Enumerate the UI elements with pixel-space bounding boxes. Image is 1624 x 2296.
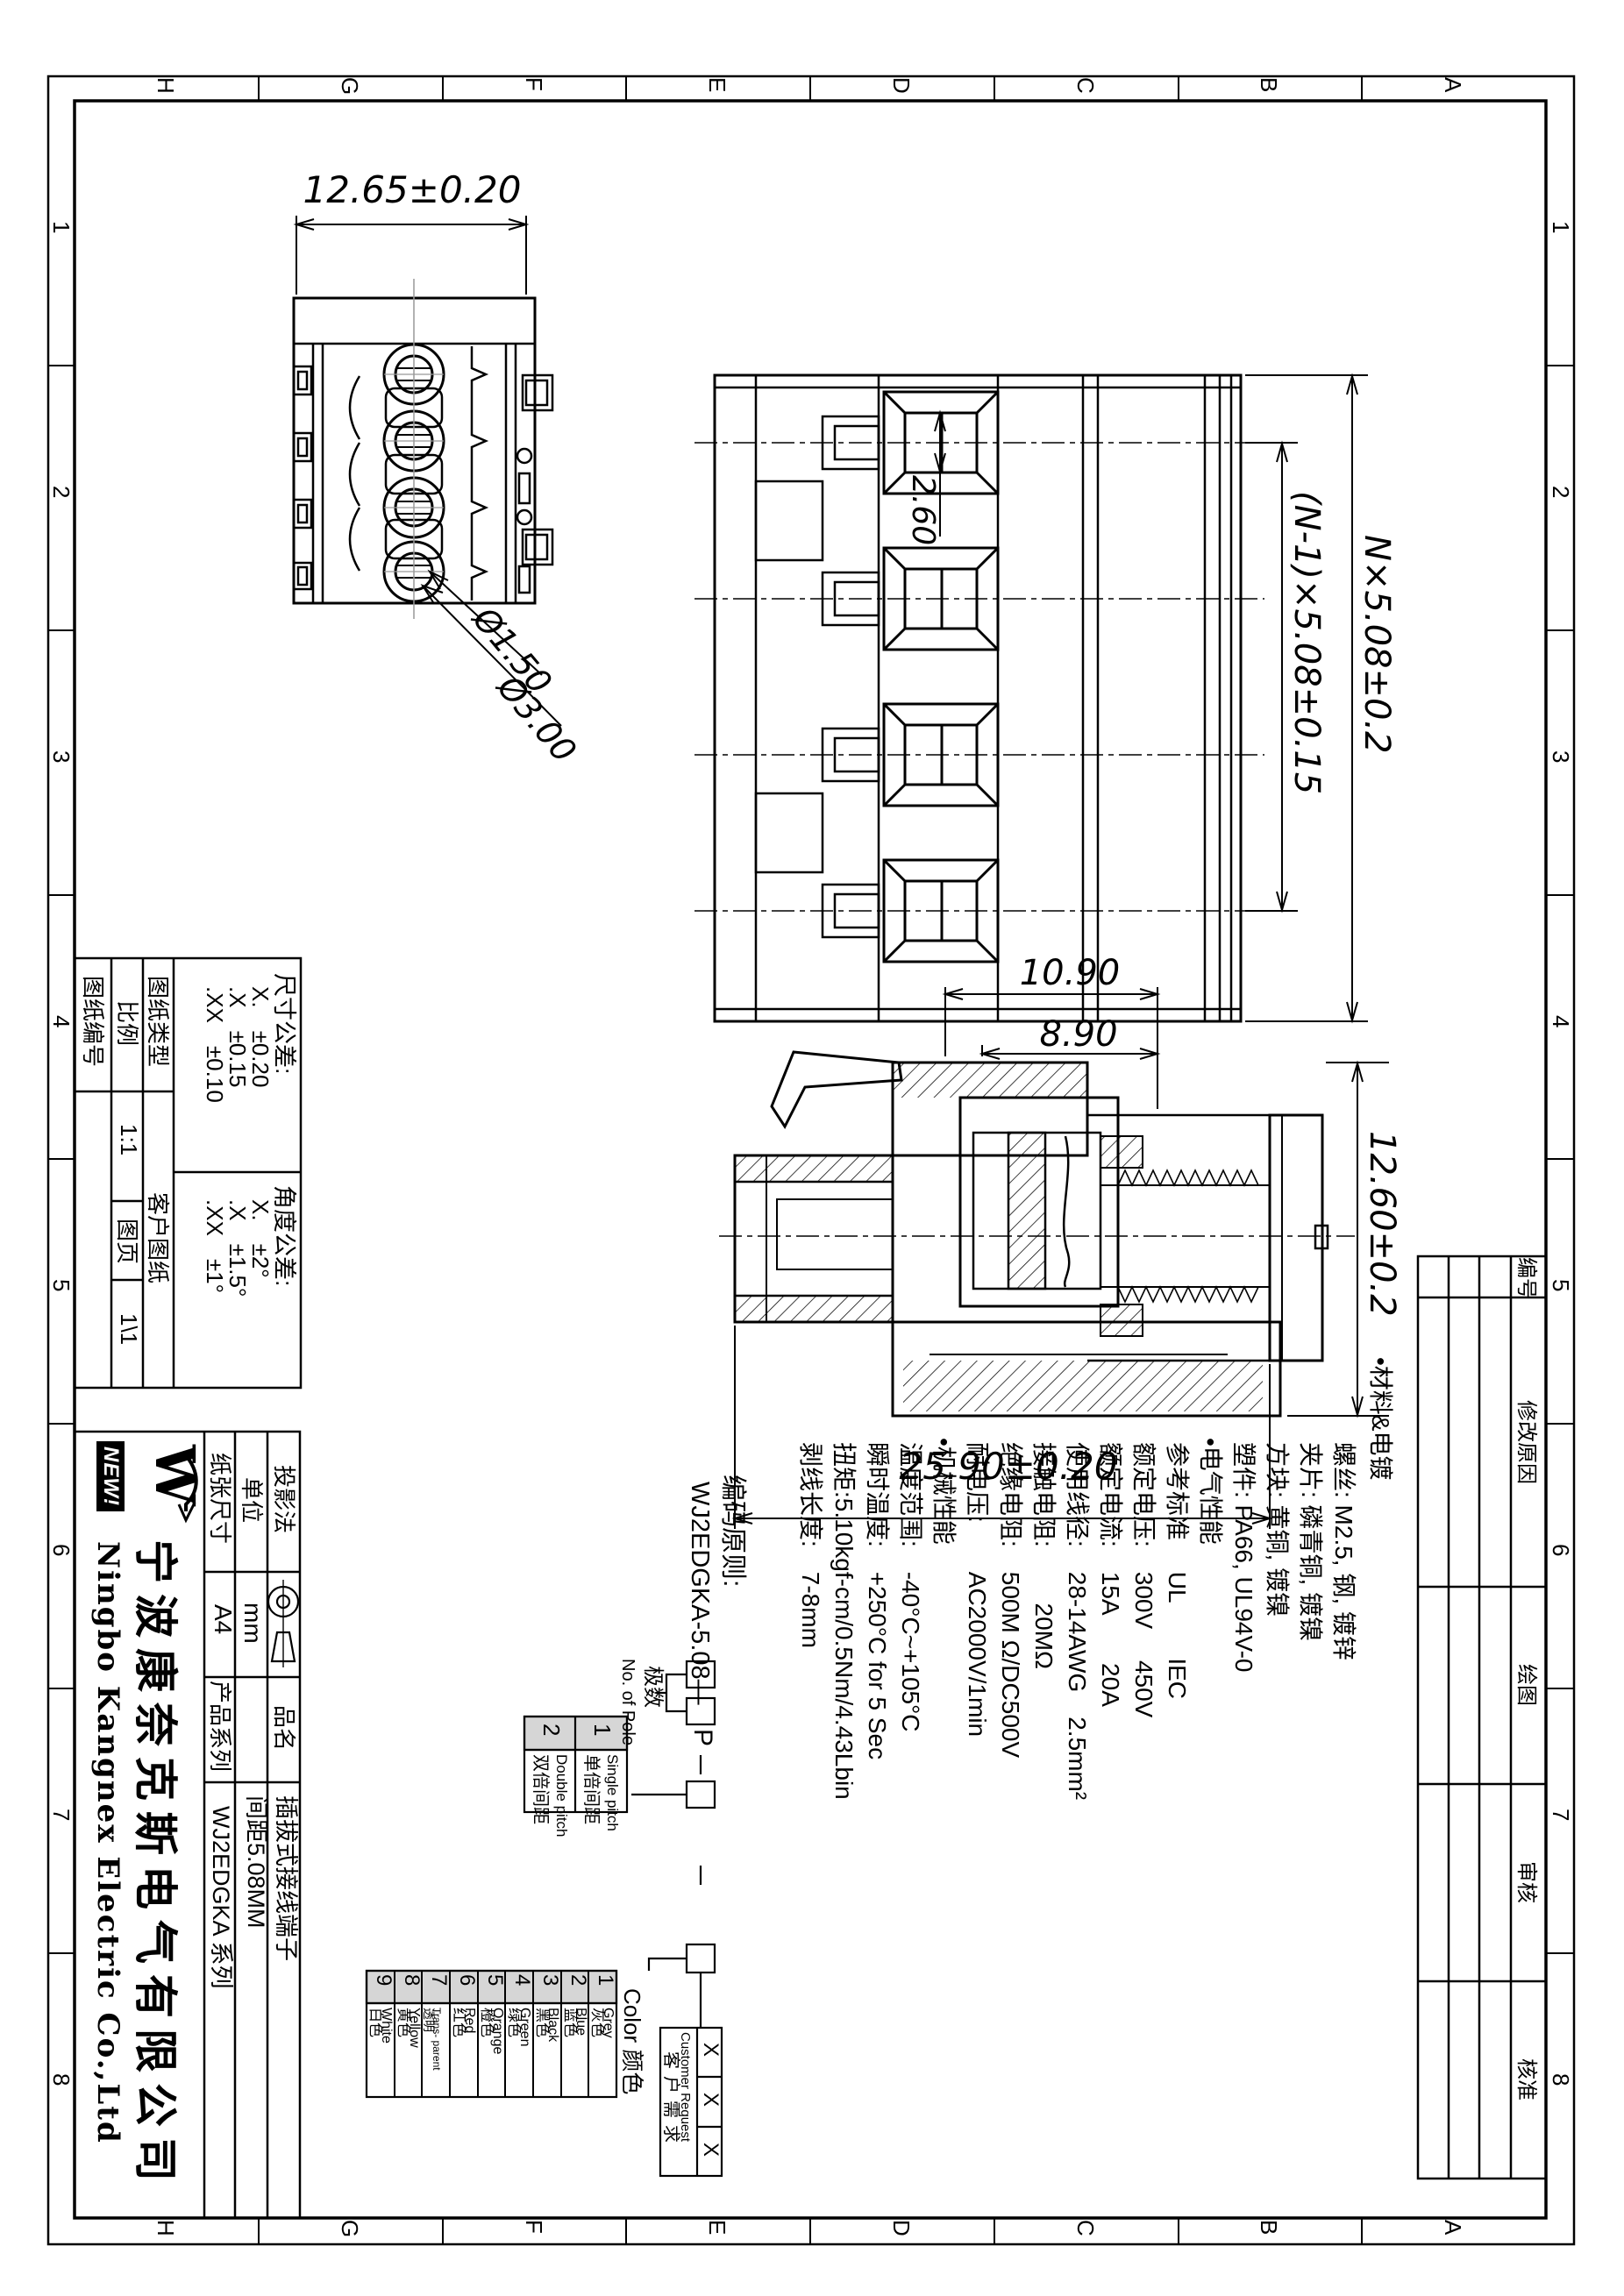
grid-number: 2 — [50, 486, 73, 498]
grid-number: 1 — [1549, 221, 1572, 233]
dim-tolerance-header: 尺寸公差: — [272, 973, 296, 1075]
grid-number: 1 — [50, 221, 73, 233]
grid-number: 4 — [1549, 1015, 1572, 1027]
grid-letter: C — [1074, 2220, 1097, 2236]
dim-10-90: 10.90 — [973, 956, 1166, 991]
scale-value: 1:1 — [118, 1124, 140, 1155]
grid-number: 6 — [50, 1544, 73, 1556]
grid-letter: H — [154, 77, 177, 94]
angle-tolerance-row: .XX ±1° — [203, 1199, 226, 1293]
color-num: 5 — [484, 1974, 505, 1986]
grid-letter: E — [706, 77, 729, 92]
unit-label: 单位 — [240, 1477, 263, 1523]
series-value: WJ2EDGKA 系列 — [209, 1806, 232, 1989]
revision-header-checked: 审核 — [1515, 1861, 1536, 1903]
grid-letter: B — [1257, 77, 1280, 92]
product-name-line2: 间距5.08MM — [244, 1795, 267, 1929]
grid-letter: D — [890, 2220, 913, 2236]
spec-line-insulation-r: 绝缘电阻: 500M Ω/DC500V — [998, 1442, 1022, 1758]
color-table-header: Color 颜色 — [621, 1988, 644, 2094]
ordering-code: WJ2EDGKA-5.08— — [687, 1482, 712, 1705]
color-name-cn: 黄色 — [396, 2008, 411, 2037]
spec-line-peak-temp: 瞬时温度: +250°C for 5 Sec — [865, 1442, 889, 1759]
projection-symbol-icon — [268, 1580, 298, 1667]
product-name-line1: 插拔式接线端子 — [274, 1795, 297, 1961]
grid-number: 8 — [50, 2073, 73, 2086]
spec-line-screw: 螺丝: M2.5, 钢, 镀锌 — [1331, 1442, 1356, 1660]
grid-number: 5 — [50, 1279, 73, 1291]
grid-number: 2 — [1549, 486, 1572, 498]
grid-letter: D — [890, 77, 913, 94]
dim-window-2-60: 2.60 — [907, 475, 938, 545]
pitch-option-en: Single pitch — [605, 1754, 620, 1831]
color-name-cn: 白色 — [368, 2008, 383, 2037]
drawing-no-label: 图纸编号 — [82, 976, 104, 1067]
color-name-cn: 蓝色 — [563, 2008, 578, 2037]
spec-line-plastic: 塑件: PA66, UL94V-0 — [1231, 1442, 1256, 1673]
color-num: 6 — [456, 1974, 477, 1986]
product-name-label: 品名 — [273, 1705, 296, 1751]
sheet-value: 1\1 — [118, 1313, 140, 1345]
spec-line-strip-length: 剥线长度: 7-8mm — [798, 1442, 823, 1648]
ordering-title: 编码原则: — [719, 1475, 745, 1587]
pitch-option-num: 1 — [591, 1724, 614, 1736]
customer-x: X — [700, 2143, 721, 2157]
spec-line-voltage: 额定电压: 300V 450V — [1131, 1442, 1156, 1717]
grid-number: 3 — [50, 750, 73, 763]
spec-line-contact-r: 接触电阻: 20MΩ — [1031, 1442, 1056, 1669]
color-num: 9 — [373, 1974, 394, 1986]
dim-12-60: 12.60±0.2 — [1364, 1131, 1400, 1317]
color-num: 2 — [567, 1974, 588, 1986]
engineering-drawing-sheet: H G F E D C B A H G F E D C B A 1 2 3 4 … — [0, 0, 1624, 2296]
angle-tolerance-header: 角度公差: — [272, 1185, 296, 1287]
spec-line-temp-range: 温度范围: -40°C~+105°C — [898, 1442, 922, 1732]
type-value: 客户图纸 — [146, 1192, 169, 1283]
angle-tolerance-row: X. ±2° — [249, 1199, 272, 1278]
pole-count-label-en: No. of Pole — [619, 1659, 637, 1745]
color-num: 1 — [595, 1974, 616, 1986]
dim-tolerance-row: .X ±0.15 — [226, 986, 249, 1087]
unit-value: mm — [240, 1603, 265, 1644]
dim-pitch-n1: (N-1)×5.08±0.15 — [1289, 491, 1324, 794]
color-name-cn: 透明 — [423, 2008, 435, 2032]
grid-letter: B — [1257, 2220, 1280, 2235]
logo-badge: NEW! — [96, 1441, 125, 1511]
grid-letter: G — [338, 77, 361, 95]
spec-line-electrical-header: •电气性能 — [1198, 1438, 1222, 1545]
spec-line-material-header: •材料&电镀 — [1368, 1357, 1393, 1480]
grid-number: 7 — [1549, 1809, 1572, 1821]
grid-letter: H — [154, 2220, 177, 2236]
dim-8-90: 8.90 — [991, 1017, 1166, 1052]
grid-number: 3 — [1549, 750, 1572, 763]
scale-label: 比例 — [116, 1000, 139, 1046]
customer-x: X — [700, 2043, 721, 2057]
company-logo: W — [147, 1445, 202, 1506]
grid-number: 6 — [1549, 1544, 1572, 1556]
ordering-code-lines — [631, 1661, 715, 2028]
dim-tolerance-row: .XX ±0.10 — [203, 986, 226, 1103]
dim-width-12-65: 12.65±0.20 — [298, 172, 526, 209]
color-name-cn: 灰色 — [590, 2008, 605, 2037]
pitch-option-num: 2 — [540, 1724, 563, 1736]
grid-number: 4 — [50, 1015, 73, 1027]
grid-letter: F — [523, 2220, 545, 2234]
pole-count-label-cn: 极数 — [642, 1666, 663, 1708]
pitch-option-cn: 双倍间距 — [531, 1754, 549, 1824]
type-label: 图纸类型 — [146, 976, 169, 1067]
projection-label: 投影法 — [273, 1465, 296, 1533]
color-name-cn: 绿色 — [507, 2008, 522, 2037]
grid-number: 8 — [1549, 2073, 1572, 2086]
color-num: 8 — [401, 1974, 422, 1986]
grid-letter: C — [1074, 77, 1097, 94]
spec-line-block: 方块: 黄铜, 镀镍 — [1264, 1442, 1289, 1617]
customer-request-en: Customer Request — [679, 2032, 692, 2142]
grid-letter: A — [1442, 77, 1464, 92]
paper-size-label: 纸张尺寸 — [209, 1453, 231, 1544]
spec-line-clip: 夹片: 磷青铜, 镀镍 — [1298, 1442, 1322, 1641]
color-name-cn: 红色 — [452, 2008, 467, 2037]
spec-line-wire: 使用线径: 28-14AWG 2.5mm² — [1065, 1442, 1089, 1800]
customer-request-cn: 客户需求 — [662, 2051, 680, 2150]
angle-tolerance-row: .X ±1.5° — [226, 1199, 249, 1297]
spec-line-torque: 扭矩:5.10kgf-cm/0.5Nm/4.43Lbin — [831, 1442, 856, 1800]
sheet-label: 图页 — [116, 1219, 139, 1264]
grid-number: 7 — [50, 1809, 73, 1821]
color-num: 4 — [511, 1974, 532, 1986]
revision-header-drawn: 绘图 — [1515, 1664, 1536, 1706]
series-label: 产品系列 — [209, 1681, 231, 1772]
paper-size-value: A4 — [210, 1604, 235, 1634]
spec-line-standard: 参考标准 UL IEC — [1165, 1442, 1189, 1699]
revision-header-approved: 核准 — [1515, 2058, 1536, 2101]
grid-number: 5 — [1549, 1279, 1572, 1291]
pitch-option-cn: 单倍间距 — [582, 1754, 600, 1824]
grid-letter: E — [706, 2220, 729, 2235]
color-name-cn: 黑色 — [535, 2008, 550, 2037]
color-name-cn: 橙色 — [480, 2008, 495, 2037]
customer-x: X — [700, 2093, 721, 2107]
company-name-cn: 宁波康奈克斯电气有限公司 — [133, 1539, 177, 2192]
grid-letter: A — [1442, 2220, 1464, 2235]
spec-line-mechanical-header: •机械性能 — [931, 1438, 956, 1545]
grid-letter: G — [338, 2220, 361, 2237]
dim-pitch-n: N×5.08±0.2 — [1359, 535, 1394, 754]
spec-line-current: 额定电流: 15A 20A — [1098, 1442, 1122, 1707]
pitch-option-en: Double pitch — [554, 1754, 569, 1838]
spec-line-withstand-v: 耐电压: AC2000V/1min — [965, 1442, 989, 1737]
front-view — [694, 375, 1368, 1021]
revision-table-borders — [1418, 1256, 1546, 2179]
ordering-p: P — [689, 1729, 716, 1746]
color-num: 7 — [428, 1974, 449, 1986]
company-name-en: Ningbo Kangnex Electric Co.,Ltd — [93, 1541, 123, 2144]
color-num: 3 — [539, 1974, 560, 1986]
dim-tolerance-row: X. ±0.20 — [249, 986, 272, 1087]
grid-letter: F — [523, 77, 545, 91]
revision-header-reason: 修改原因 — [1515, 1400, 1536, 1484]
revision-header-no: 编号 — [1515, 1257, 1536, 1299]
